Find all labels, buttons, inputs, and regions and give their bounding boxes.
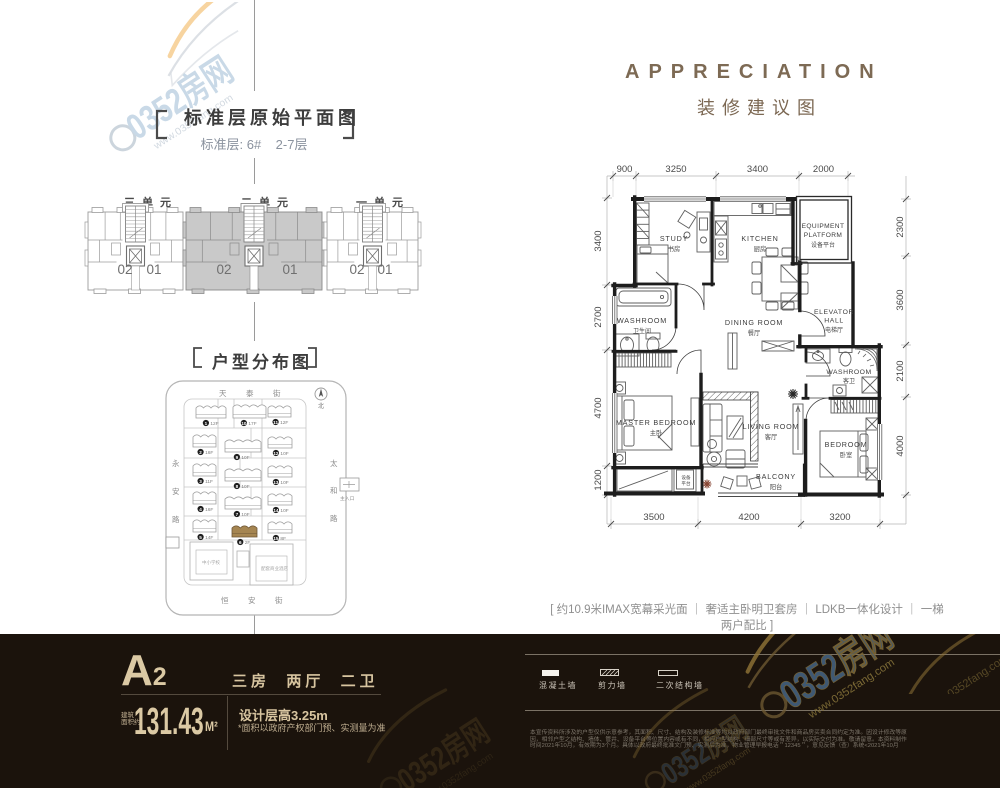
svg-text:安: 安	[248, 595, 256, 605]
svg-text:中小学校: 中小学校	[202, 559, 220, 566]
svg-text:书房: 书房	[668, 244, 681, 253]
svg-text:HALL: HALL	[824, 318, 843, 325]
svg-text:卧室: 卧室	[840, 450, 853, 459]
svg-text:恒: 恒	[221, 595, 229, 605]
svg-text:11: 11	[273, 420, 278, 425]
svg-text:街: 街	[275, 595, 283, 605]
svg-text:安: 安	[172, 486, 180, 496]
svg-text:10F: 10F	[280, 508, 288, 514]
svg-text:2300: 2300	[895, 216, 906, 237]
svg-text:14F: 14F	[205, 535, 213, 541]
svg-text:STUDY: STUDY	[660, 234, 688, 243]
svg-text:PLATFORM: PLATFORM	[804, 232, 843, 239]
svg-text:EQUIPMENT: EQUIPMENT	[802, 223, 845, 230]
svg-text:02: 02	[117, 262, 132, 277]
svg-text:4000: 4000	[895, 435, 906, 456]
svg-text:3: 3	[199, 479, 202, 484]
svg-text:设备平台: 设备平台	[811, 241, 835, 249]
svg-text:1200: 1200	[593, 469, 604, 490]
svg-text:9: 9	[236, 455, 239, 460]
svg-text:10F: 10F	[241, 484, 249, 490]
svg-text:10F: 10F	[280, 451, 288, 457]
svg-text:WASHROOM: WASHROOM	[826, 369, 871, 376]
svg-text:10F: 10F	[241, 512, 249, 518]
svg-text:泰: 泰	[246, 388, 254, 398]
svg-text:8F: 8F	[280, 536, 286, 542]
svg-text:设备: 设备	[681, 474, 691, 481]
svg-text:MASTER BEDROOM: MASTER BEDROOM	[616, 418, 696, 427]
svg-text:3200: 3200	[829, 512, 850, 523]
svg-text:13: 13	[273, 480, 279, 485]
svg-text:2700: 2700	[593, 306, 604, 327]
svg-text:KITCHEN: KITCHEN	[741, 234, 778, 243]
svg-text:3250: 3250	[665, 164, 686, 175]
svg-text:路: 路	[172, 514, 180, 524]
svg-text:街: 街	[273, 388, 281, 398]
svg-text:BEDROOM: BEDROOM	[825, 440, 868, 449]
svg-text:16F: 16F	[205, 507, 213, 513]
svg-text:和: 和	[330, 486, 338, 495]
svg-text:永: 永	[172, 458, 180, 468]
svg-text:太: 太	[330, 458, 338, 468]
svg-text:01: 01	[282, 262, 297, 277]
svg-text:6: 6	[239, 540, 242, 545]
svg-text:12F: 12F	[210, 421, 218, 427]
svg-text:5: 5	[199, 535, 202, 540]
svg-text:4700: 4700	[593, 397, 604, 418]
svg-text:8: 8	[236, 484, 239, 489]
svg-text:主卧: 主卧	[650, 428, 663, 437]
svg-text:02: 02	[349, 262, 364, 277]
svg-text:主入口: 主入口	[340, 495, 355, 502]
svg-text:北: 北	[318, 402, 324, 410]
svg-text:14: 14	[273, 508, 279, 513]
svg-text:LIVING ROOM: LIVING ROOM	[743, 422, 800, 431]
svg-text:0352房网: 0352房网	[391, 713, 495, 788]
svg-text:餐厅: 餐厅	[748, 328, 761, 337]
svg-text:厨房: 厨房	[754, 244, 767, 253]
svg-text:11F: 11F	[205, 479, 213, 485]
svg-text:阳台: 阳台	[770, 482, 783, 491]
svg-text:01: 01	[146, 262, 161, 277]
svg-text:2100: 2100	[895, 360, 906, 381]
svg-text:DINING ROOM: DINING ROOM	[725, 318, 783, 327]
svg-text:客卫: 客卫	[843, 377, 855, 385]
svg-text:2F: 2F	[245, 540, 251, 546]
svg-text:12: 12	[273, 451, 279, 456]
svg-text:4200: 4200	[738, 512, 759, 523]
svg-text:16F: 16F	[205, 450, 213, 456]
svg-text:平台: 平台	[681, 480, 691, 487]
svg-text:BALCONY: BALCONY	[756, 472, 796, 481]
svg-text:配套商业酒店: 配套商业酒店	[261, 565, 288, 572]
svg-text:2: 2	[199, 450, 202, 455]
svg-text:卫生间: 卫生间	[633, 327, 651, 335]
svg-text:4: 4	[199, 507, 202, 512]
svg-text:10F: 10F	[241, 455, 249, 461]
svg-text:ELEVATOR: ELEVATOR	[814, 309, 854, 316]
svg-text:01: 01	[377, 262, 392, 277]
svg-text:3400: 3400	[593, 230, 604, 251]
svg-text:12F: 12F	[280, 420, 288, 426]
svg-text:15: 15	[273, 536, 279, 541]
svg-text:900: 900	[617, 164, 633, 175]
svg-text:电梯厅: 电梯厅	[825, 326, 843, 334]
svg-text:1: 1	[205, 421, 208, 426]
svg-text:2000: 2000	[813, 164, 834, 175]
svg-text:客厅: 客厅	[765, 432, 778, 441]
svg-text:3600: 3600	[895, 289, 906, 310]
svg-text:02: 02	[216, 262, 231, 277]
svg-text:WASHROOM: WASHROOM	[617, 316, 667, 325]
svg-text:7: 7	[236, 512, 239, 517]
svg-text:天: 天	[219, 389, 227, 398]
svg-text:3500: 3500	[643, 512, 664, 523]
svg-text:10F: 10F	[280, 480, 288, 486]
svg-text:路: 路	[330, 513, 338, 523]
svg-text:3400: 3400	[747, 164, 768, 175]
svg-text:10: 10	[241, 421, 247, 426]
svg-text:17F: 17F	[248, 421, 256, 427]
